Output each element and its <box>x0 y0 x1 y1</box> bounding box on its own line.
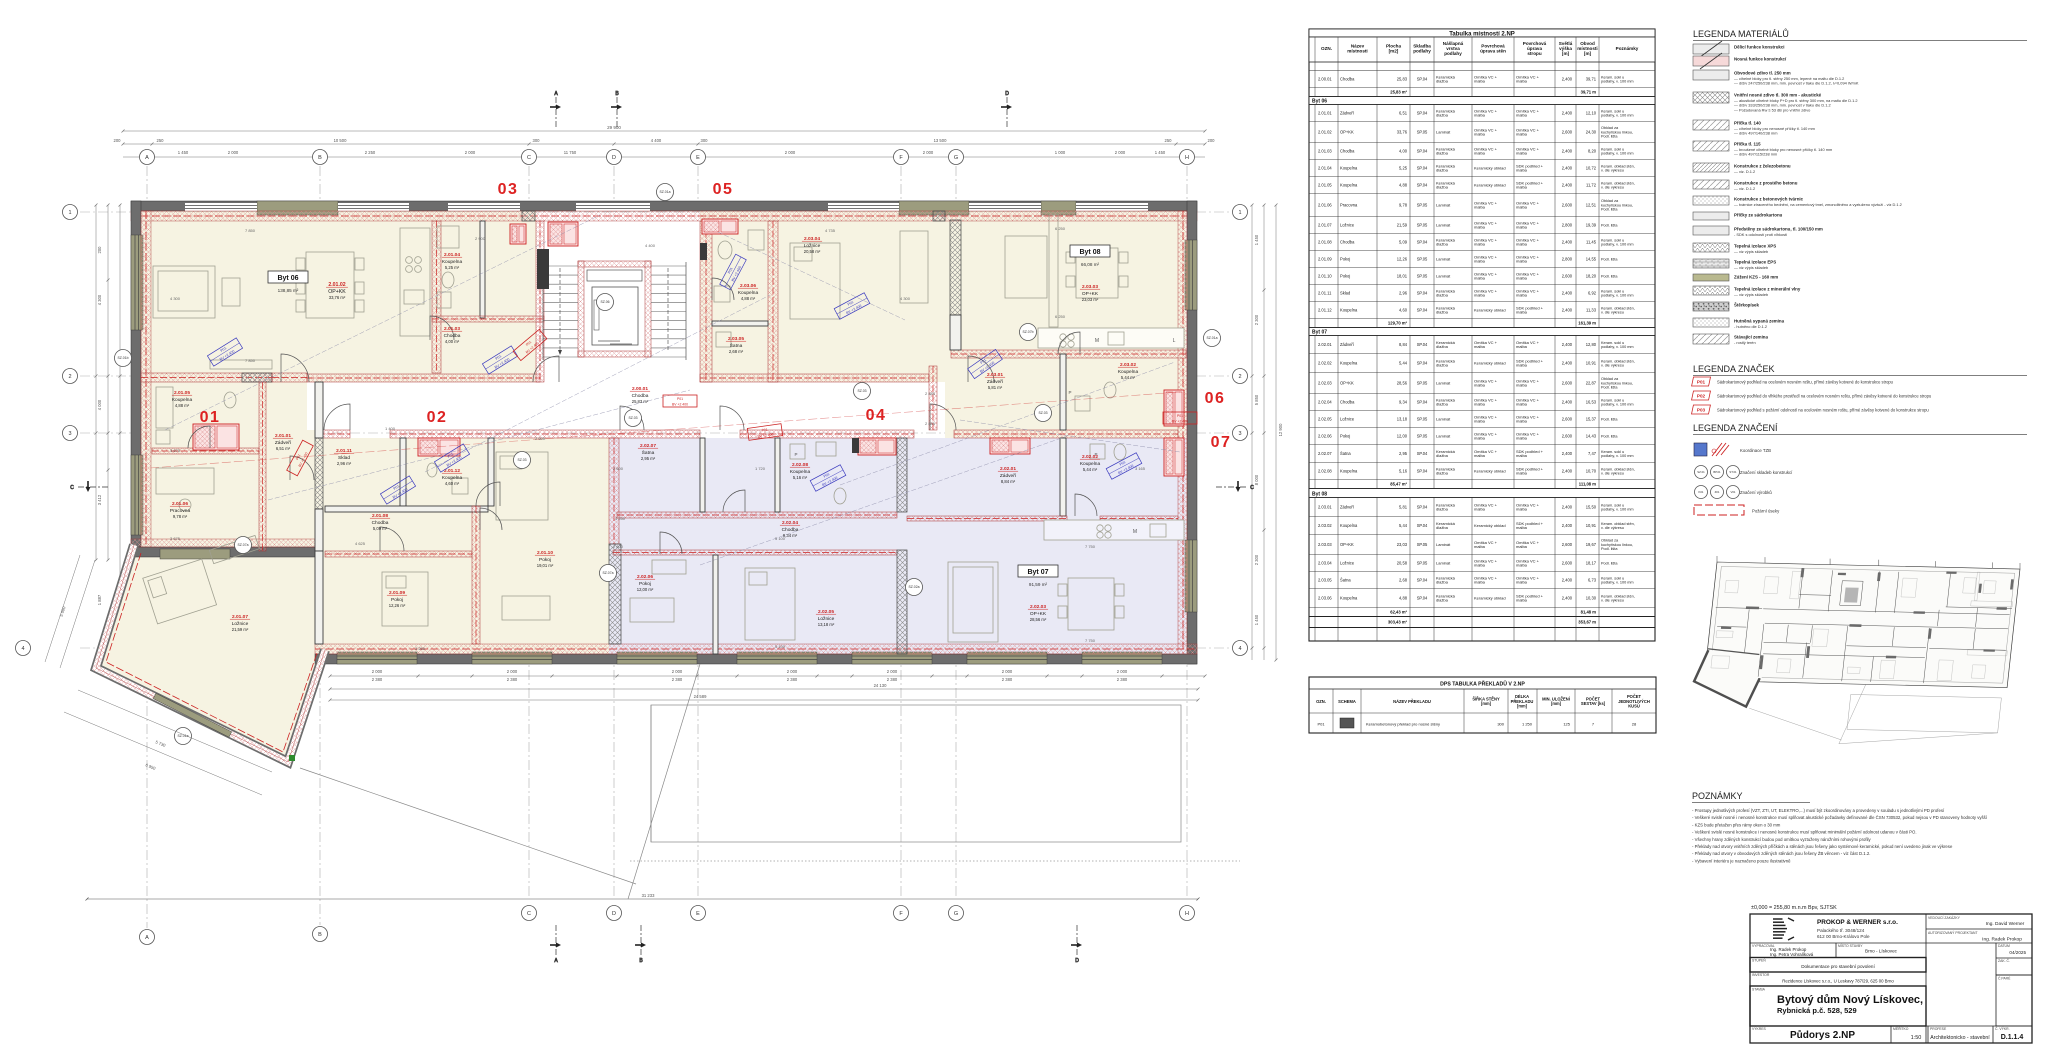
svg-text:2,400: 2,400 <box>1562 110 1573 115</box>
svg-text:Koupelna: Koupelna <box>1340 468 1358 473</box>
svg-text:303,43 m²: 303,43 m² <box>1388 620 1408 625</box>
svg-text:Keramický obklad: Keramický obklad <box>1474 360 1506 365</box>
svg-text:malba: malba <box>1516 363 1528 368</box>
svg-text:8 000: 8 000 <box>1254 474 1259 485</box>
svg-text:Laminát: Laminát <box>1436 542 1451 547</box>
svg-text:2,400: 2,400 <box>1562 239 1573 244</box>
svg-text:Keramobetonový překlad pro nos: Keramobetonový překlad pro nosné stěny <box>1366 722 1440 727</box>
svg-text:2 380: 2 380 <box>787 677 798 682</box>
svg-text:malba: malba <box>1516 293 1528 298</box>
svg-text:malba: malba <box>1516 225 1528 230</box>
svg-text:SP.04: SP.04 <box>1417 148 1428 153</box>
svg-text:malba: malba <box>1516 419 1528 424</box>
svg-text:malba: malba <box>1474 544 1486 549</box>
svg-text:5,16 m²: 5,16 m² <box>793 475 808 480</box>
svg-text:14,55: 14,55 <box>1586 256 1597 261</box>
svg-text:Ložnice: Ložnice <box>1340 222 1355 227</box>
svg-text:13 500: 13 500 <box>934 138 947 143</box>
svg-text:20,58: 20,58 <box>1397 560 1408 565</box>
svg-text:malba: malba <box>1474 225 1486 230</box>
svg-text:STAVBA: STAVBA <box>1752 988 1766 992</box>
svg-text:Příčky ze sádrokartonu: Příčky ze sádrokartonu <box>1734 213 1783 218</box>
svg-text:2,95 m²: 2,95 m² <box>641 456 656 461</box>
svg-text:9,78: 9,78 <box>1399 202 1408 207</box>
svg-text:Vnitřní nosné zdivo tl. 300 mm: Vnitřní nosné zdivo tl. 300 mm - akustic… <box>1734 93 1822 98</box>
svg-text:12,51: 12,51 <box>1586 202 1597 207</box>
svg-text:Podl. lišta: Podl. lišta <box>1601 208 1618 212</box>
svg-text:SZ.07a: SZ.07a <box>238 543 249 547</box>
svg-text:podlahy: podlahy <box>1413 49 1431 54</box>
svg-text:Zádveří: Zádveří <box>1340 342 1355 347</box>
svg-text:15,50: 15,50 <box>1586 504 1597 509</box>
svg-text:KUSŮ: KUSŮ <box>1628 703 1640 708</box>
svg-text:2.01.09: 2.01.09 <box>1318 256 1332 261</box>
svg-text:VÝKRES: VÝKRES <box>1752 1027 1766 1031</box>
svg-text:12,00 m²: 12,00 m² <box>637 587 654 592</box>
svg-text:Keramický obklad: Keramický obklad <box>1474 182 1506 187</box>
svg-text:podlahy, v. 100 mm: podlahy, v. 100 mm <box>1601 403 1634 407</box>
svg-text:- Všechny hrany zděných konstr: - Všechny hrany zděných konstrukcí budou… <box>1692 837 1871 842</box>
svg-text:LEGENDA ZNAČENÍ: LEGENDA ZNAČENÍ <box>1693 423 1778 433</box>
svg-text:Tabulka místností 2.NP: Tabulka místností 2.NP <box>1449 32 1515 38</box>
svg-text:7,47: 7,47 <box>1588 451 1597 456</box>
svg-text:C: C <box>70 485 74 491</box>
svg-text:8,84: 8,84 <box>1399 342 1408 347</box>
svg-text:3 675: 3 675 <box>170 448 181 453</box>
svg-text:P01: P01 <box>1697 380 1706 385</box>
svg-text:podlahy, v. 100 mm: podlahy, v. 100 mm <box>1601 80 1634 84</box>
svg-text:2.01.06: 2.01.06 <box>1318 202 1332 207</box>
svg-text:2.01.08: 2.01.08 <box>1318 239 1332 244</box>
svg-text:Ložnice: Ložnice <box>1340 560 1355 565</box>
svg-text:Koordinace TZB: Koordinace TZB <box>1740 448 1771 453</box>
svg-text:2.02.03: 2.02.03 <box>1318 380 1332 385</box>
svg-text:Laminát: Laminát <box>1436 273 1451 278</box>
svg-text:SP.04: SP.04 <box>1417 239 1428 244</box>
svg-text:Keramický obklad: Keramický obklad <box>1474 523 1506 528</box>
svg-text:2.01.11: 2.01.11 <box>1318 290 1332 295</box>
svg-text:dlažba: dlažba <box>1436 363 1449 368</box>
svg-text:2 000: 2 000 <box>887 669 898 674</box>
svg-text:Předstěny ze sádrokartonu, tl.: Předstěny ze sádrokartonu, tl. 100/150 m… <box>1734 227 1823 232</box>
svg-text:7 850: 7 850 <box>245 358 256 363</box>
svg-text:02: 02 <box>427 409 448 426</box>
svg-text:111,08 m: 111,08 m <box>1579 482 1597 487</box>
svg-text:- Prostupy jednotlivých profes: - Prostupy jednotlivých profesí (VZT, ZT… <box>1692 808 1945 813</box>
svg-text:200: 200 <box>1208 138 1216 143</box>
svg-text:39,71: 39,71 <box>1586 76 1597 81</box>
svg-text:malba: malba <box>1516 544 1528 549</box>
svg-text:v. dle výkresu: v. dle výkresu <box>1601 186 1624 190</box>
svg-text:Poznámky: Poznámky <box>1616 46 1639 51</box>
svg-text:5,16: 5,16 <box>1399 468 1408 473</box>
svg-text:2: 2 <box>68 374 71 380</box>
svg-text:SZ.03: SZ.03 <box>628 416 637 420</box>
svg-text:P: P <box>794 452 797 457</box>
svg-text:[m]: [m] <box>1562 51 1570 56</box>
svg-text:C: C <box>527 911 531 917</box>
svg-text:5,44: 5,44 <box>1399 360 1408 365</box>
svg-text:2 900: 2 900 <box>475 236 486 241</box>
svg-text:12,26 m²: 12,26 m² <box>389 603 406 608</box>
svg-text:Laminát: Laminát <box>1436 129 1451 134</box>
svg-text:2,600: 2,600 <box>1562 202 1573 207</box>
svg-text:SP.04: SP.04 <box>1417 76 1428 81</box>
svg-text:13,18: 13,18 <box>1397 416 1408 421</box>
svg-text:7 750: 7 750 <box>1085 544 1096 549</box>
svg-text:2,96 m²: 2,96 m² <box>337 461 352 466</box>
svg-text:2,400: 2,400 <box>1562 468 1573 473</box>
svg-text:2 380: 2 380 <box>1002 677 1013 682</box>
svg-text:2 380: 2 380 <box>372 677 383 682</box>
svg-text:P01: P01 <box>677 397 683 401</box>
svg-text:6 250: 6 250 <box>1055 314 1066 319</box>
svg-text:malba: malba <box>1474 293 1486 298</box>
svg-text:SP.04: SP.04 <box>1417 468 1428 473</box>
svg-text:podlahy: podlahy <box>1444 51 1462 56</box>
svg-text:malba: malba <box>1474 132 1486 137</box>
svg-text:Šatna: Šatna <box>642 449 655 456</box>
svg-text:2,400: 2,400 <box>1562 182 1573 187</box>
svg-text:SP.04: SP.04 <box>1417 451 1428 456</box>
svg-text:C: C <box>527 155 531 161</box>
svg-text:6,51: 6,51 <box>1399 110 1408 115</box>
svg-text:11 750: 11 750 <box>564 150 577 155</box>
svg-text:5,44 m²: 5,44 m² <box>1083 467 1098 472</box>
svg-text:malba: malba <box>1474 242 1486 247</box>
svg-text:1 400: 1 400 <box>385 426 396 431</box>
svg-text:malba: malba <box>1516 259 1528 264</box>
svg-text:Koupelna: Koupelna <box>1340 307 1358 312</box>
svg-text:2 300: 2 300 <box>1254 314 1259 325</box>
svg-text:v. dle výkresu: v. dle výkresu <box>1601 311 1624 315</box>
svg-text:Laminát: Laminát <box>1436 560 1451 565</box>
svg-text:podlahy, v. 100 mm: podlahy, v. 100 mm <box>1601 345 1634 349</box>
svg-text:malba: malba <box>1474 344 1486 349</box>
svg-text:Stávající zemina: Stávající zemina <box>1734 335 1768 340</box>
svg-text:- rostlý terén: - rostlý terén <box>1734 340 1756 345</box>
svg-text:5 100: 5 100 <box>775 536 786 541</box>
svg-text:2,400: 2,400 <box>1562 399 1573 404</box>
svg-text:G: G <box>954 155 958 161</box>
svg-text:4,00: 4,00 <box>1399 148 1408 153</box>
svg-text:10,70: 10,70 <box>1586 468 1597 473</box>
svg-text:250: 250 <box>1165 138 1173 143</box>
svg-text:PROFESE: PROFESE <box>1930 1027 1947 1031</box>
svg-text:— d/š/v 497/140/238 mm: — d/š/v 497/140/238 mm <box>1734 131 1777 136</box>
svg-text:V01: V01 <box>1731 490 1736 494</box>
svg-text:5,09: 5,09 <box>1399 239 1408 244</box>
svg-text:6 250: 6 250 <box>1055 226 1066 231</box>
svg-text:4,88: 4,88 <box>1399 595 1408 600</box>
svg-text:dlažba: dlažba <box>1436 293 1449 298</box>
svg-text:Chodba: Chodba <box>1340 76 1355 81</box>
svg-text:Bytový dům Nový Lískovec,: Bytový dům Nový Lískovec, <box>1777 994 1923 1006</box>
svg-text:4 625: 4 625 <box>355 541 366 546</box>
svg-text:Byt 07: Byt 07 <box>1027 569 1048 576</box>
svg-text:SP.05: SP.05 <box>1417 416 1428 421</box>
svg-text:SP.05: SP.05 <box>1417 222 1428 227</box>
svg-text:6,51 m²: 6,51 m² <box>276 446 291 451</box>
svg-text:L: L <box>1173 338 1176 344</box>
svg-text:2 885: 2 885 <box>925 391 936 396</box>
svg-text:DPS TABULKA PŘEKLADŮ V 2.NP: DPS TABULKA PŘEKLADŮ V 2.NP <box>1440 680 1525 688</box>
svg-text:malba: malba <box>1516 598 1528 603</box>
svg-text:2.02.04: 2.02.04 <box>1318 399 1332 404</box>
svg-text:2,600: 2,600 <box>1562 433 1573 438</box>
svg-text:Koupelna: Koupelna <box>1340 523 1358 528</box>
svg-text:- hutněno dle D.1.2: - hutněno dle D.1.2 <box>1734 324 1767 329</box>
svg-text:10,91: 10,91 <box>1586 360 1597 365</box>
svg-text:NÁZEV PŘEKLADU: NÁZEV PŘEKLADU <box>1393 699 1431 704</box>
svg-text:612 00 Brno-Královo Pole: 612 00 Brno-Královo Pole <box>1817 934 1870 939</box>
svg-text:19,39: 19,39 <box>1586 222 1597 227</box>
svg-text:2.03.01: 2.03.01 <box>1318 504 1332 509</box>
svg-text:2 000: 2 000 <box>923 150 934 155</box>
svg-text:2,400: 2,400 <box>1562 595 1573 600</box>
svg-text:2.01.04: 2.01.04 <box>1318 165 1332 170</box>
svg-text:D: D <box>1005 91 1009 97</box>
svg-text:Dělicí funkce konstrukci: Dělicí funkce konstrukci <box>1734 45 1785 50</box>
svg-text:10 500: 10 500 <box>334 138 347 143</box>
svg-text:Obvodové zdivo tl. 250 mm: Obvodové zdivo tl. 250 mm <box>1734 71 1791 76</box>
svg-text:SP.05: SP.05 <box>1417 129 1428 134</box>
svg-text:2.03.06: 2.03.06 <box>1318 595 1332 600</box>
svg-text:Sádrokartonový podhled s požár: Sádrokartonový podhled s požární odolnos… <box>1717 408 1929 413</box>
svg-text:Šatna: Šatna <box>1340 451 1351 456</box>
svg-text:Tepelná izolace z minerální vl: Tepelná izolace z minerální vlny <box>1734 287 1801 292</box>
svg-text:DATUM: DATUM <box>1998 944 2010 948</box>
svg-text:2,400: 2,400 <box>1562 504 1573 509</box>
svg-text:1: 1 <box>1238 210 1241 216</box>
svg-text:AUTORIZOVANÝ PROJEKTANT: AUTORIZOVANÝ PROJEKTANT <box>1928 931 1978 935</box>
svg-text:SZ.01a: SZ.01a <box>660 190 671 194</box>
svg-text:4,88 m²: 4,88 m² <box>741 296 756 301</box>
svg-text:03: 03 <box>498 181 519 198</box>
svg-text:[m]: [m] <box>1584 51 1592 56</box>
svg-text:Požární úseky: Požární úseky <box>1752 509 1780 514</box>
svg-text:VEDOUCÍ ZAKÁZKY: VEDOUCÍ ZAKÁZKY <box>1928 916 1961 920</box>
svg-text:— viz výpis skladeb: — viz výpis skladeb <box>1734 265 1768 270</box>
svg-text:2 600: 2 600 <box>613 466 624 471</box>
svg-text:300: 300 <box>1497 722 1504 727</box>
svg-text:Nosná funkce konstrukcí: Nosná funkce konstrukcí <box>1734 57 1787 62</box>
svg-text:H: H <box>1185 911 1189 917</box>
svg-text:malba: malba <box>1516 242 1528 247</box>
svg-text:1 000: 1 000 <box>1055 150 1066 155</box>
svg-text:2.00.01: 2.00.01 <box>1318 76 1332 81</box>
svg-text:6,73: 6,73 <box>1588 577 1597 582</box>
svg-text:66,08 m²: 66,08 m² <box>1081 262 1100 267</box>
svg-text:4 300: 4 300 <box>900 296 911 301</box>
svg-text:2 000: 2 000 <box>1115 150 1126 155</box>
svg-text:2 600: 2 600 <box>613 544 624 549</box>
svg-text:9,34 m²: 9,34 m² <box>783 533 798 538</box>
svg-text:Hutněná sypaná zemina: Hutněná sypaná zemina <box>1734 319 1785 324</box>
svg-text:[mm]: [mm] <box>1551 701 1562 706</box>
svg-text:11,45: 11,45 <box>1586 239 1597 244</box>
svg-text:2,400: 2,400 <box>1562 577 1573 582</box>
svg-text:4 735: 4 735 <box>825 228 836 233</box>
svg-text:2.02.01: 2.02.01 <box>1318 342 1332 347</box>
svg-text:Sádrokartonový podhled na ocel: Sádrokartonový podhled na ocelovém nosné… <box>1717 380 1893 385</box>
svg-text:— d/š/v 247/250/238 mm, min. p: — d/š/v 247/250/238 mm, min. pevnost v t… <box>1734 81 1859 86</box>
svg-text:dlažba: dlažba <box>1436 242 1449 247</box>
svg-text:19,67: 19,67 <box>1586 542 1597 547</box>
svg-text:Pokoj: Pokoj <box>1340 273 1350 278</box>
svg-text:E: E <box>696 155 700 161</box>
svg-text:Koupelna: Koupelna <box>1340 595 1358 600</box>
svg-text:2 000: 2 000 <box>785 150 796 155</box>
svg-text:04: 04 <box>866 407 887 424</box>
svg-text:Keramický obklad: Keramický obklad <box>1474 595 1506 600</box>
svg-text:Pokoj: Pokoj <box>1340 433 1350 438</box>
svg-text:malba: malba <box>1474 580 1486 585</box>
svg-text:P01: P01 <box>761 428 768 433</box>
svg-text:2,400: 2,400 <box>1562 307 1573 312</box>
svg-text:INVESTOR: INVESTOR <box>1752 973 1770 977</box>
svg-text:Ing. Radek Prokop: Ing. Radek Prokop <box>1982 937 2022 943</box>
svg-text:místnosti: místnosti <box>1347 49 1367 54</box>
svg-text:C: C <box>1250 485 1254 491</box>
svg-text:Ing. Petra Vohralíková: Ing. Petra Vohralíková <box>1770 952 1814 957</box>
svg-text:malba: malba <box>1516 310 1528 315</box>
svg-text:- Vybavení interiéru je naznač: - Vybavení interiéru je naznačeno pouze … <box>1692 858 1791 863</box>
svg-text:2,400: 2,400 <box>1562 76 1573 81</box>
svg-text:28,56 m²: 28,56 m² <box>1030 617 1047 622</box>
svg-text:malba: malba <box>1516 276 1528 281</box>
svg-text:2 000: 2 000 <box>372 669 383 674</box>
svg-text:— viz výpis skladeb: — viz výpis skladeb <box>1734 249 1768 254</box>
svg-text:— viz výpis skladeb: — viz výpis skladeb <box>1734 292 1768 297</box>
svg-text:Konstrukce z prostého betonu: Konstrukce z prostého betonu <box>1734 181 1798 186</box>
svg-text:28: 28 <box>1632 722 1637 727</box>
svg-text:4,60 m²: 4,60 m² <box>445 481 460 486</box>
svg-text:1 450: 1 450 <box>1254 614 1259 625</box>
svg-text:5,25: 5,25 <box>1399 165 1408 170</box>
svg-text:5,81 m²: 5,81 m² <box>988 385 1003 390</box>
svg-text:20,58 m²: 20,58 m² <box>804 249 821 254</box>
svg-text:SP.05: SP.05 <box>1417 560 1428 565</box>
svg-text:dlažba: dlažba <box>1436 402 1449 407</box>
svg-text:malba: malba <box>1516 205 1528 210</box>
svg-text:2,95: 2,95 <box>1399 451 1408 456</box>
svg-text:malba: malba <box>1474 151 1486 156</box>
svg-text:B: B <box>318 932 322 938</box>
svg-text:4,88 m²: 4,88 m² <box>175 403 190 408</box>
svg-text:malba: malba <box>1474 113 1486 118</box>
svg-text:4 400: 4 400 <box>645 243 656 248</box>
svg-text:2.02.07: 2.02.07 <box>1318 451 1332 456</box>
svg-text:POZNÁMKY: POZNÁMKY <box>1692 791 1743 801</box>
svg-text:4: 4 <box>21 646 24 652</box>
svg-text:Chodba: Chodba <box>1340 399 1355 404</box>
svg-text:D: D <box>612 911 616 917</box>
svg-text:05: 05 <box>713 181 734 198</box>
svg-text:2 600: 2 600 <box>535 436 546 441</box>
svg-text:dlažba: dlažba <box>1436 79 1449 84</box>
svg-text:29 900: 29 900 <box>607 125 621 130</box>
svg-text:podlahy, v. 100 mm: podlahy, v. 100 mm <box>1601 508 1634 512</box>
svg-text:SP.05: SP.05 <box>1417 256 1428 261</box>
svg-text:K01: K01 <box>1699 490 1704 494</box>
svg-text:SESTAV [ks]: SESTAV [ks] <box>1581 701 1606 706</box>
svg-text:19,01 m²: 19,01 m² <box>537 563 554 568</box>
svg-text:podlahy, v. 100 mm: podlahy, v. 100 mm <box>1601 243 1634 247</box>
svg-text:PROKOP & WERNER s.r.o.: PROKOP & WERNER s.r.o. <box>1817 919 1898 926</box>
svg-text:Laminát: Laminát <box>1436 222 1451 227</box>
svg-text:malba: malba <box>1516 79 1528 84</box>
svg-text:Podl. lišta: Podl. lišta <box>1601 434 1618 438</box>
svg-text:2.01.07: 2.01.07 <box>1318 222 1332 227</box>
svg-text:2,400: 2,400 <box>1562 165 1573 170</box>
svg-text:2.03.05: 2.03.05 <box>1318 577 1332 582</box>
svg-text:SZ.06: SZ.06 <box>600 300 609 304</box>
svg-text:5,44 m²: 5,44 m² <box>1121 375 1136 380</box>
svg-text:SZ.07b: SZ.07b <box>1023 330 1034 334</box>
svg-text:7 850: 7 850 <box>245 228 256 233</box>
svg-text:2,400: 2,400 <box>1562 148 1573 153</box>
svg-text:2 300: 2 300 <box>1254 554 1259 565</box>
svg-text:SCHEMA: SCHEMA <box>1338 699 1356 704</box>
svg-text:Konstrukce z železobetonu: Konstrukce z železobetonu <box>1734 164 1791 169</box>
svg-text:dlažba: dlažba <box>1436 151 1449 156</box>
svg-text:7 750: 7 750 <box>1085 638 1096 643</box>
svg-text:200: 200 <box>114 138 122 143</box>
svg-text:1 720: 1 720 <box>755 466 766 471</box>
svg-text:2,600: 2,600 <box>1562 273 1573 278</box>
svg-text:2,96: 2,96 <box>1399 290 1408 295</box>
svg-text:podlahy, v. 100 mm: podlahy, v. 100 mm <box>1601 152 1634 156</box>
svg-text:22,87: 22,87 <box>1586 380 1597 385</box>
svg-text:malba: malba <box>1516 453 1528 458</box>
svg-text:SZ.03: SZ.03 <box>517 458 526 462</box>
svg-text:14,43: 14,43 <box>1586 433 1597 438</box>
svg-text:12,10: 12,10 <box>1586 110 1597 115</box>
svg-text:- Překlady nad otvory v obvodo: - Překlady nad otvory v obvodových zděný… <box>1692 851 1870 856</box>
svg-text:podlahy, v. 100 mm: podlahy, v. 100 mm <box>1601 294 1634 298</box>
svg-text:4 400: 4 400 <box>651 138 662 143</box>
svg-text:21,59: 21,59 <box>1397 222 1408 227</box>
svg-text:OP+KK: OP+KK <box>1340 129 1354 134</box>
svg-text:25,83 m²: 25,83 m² <box>632 399 649 404</box>
svg-text:1:50: 1:50 <box>1911 1035 1922 1041</box>
svg-text:10,72: 10,72 <box>1586 165 1597 170</box>
svg-text:ST.01: ST.01 <box>1729 470 1737 474</box>
svg-text:OZN.: OZN. <box>1321 46 1332 51</box>
svg-text:SZ.07a: SZ.07a <box>603 571 614 575</box>
svg-text:SP.04: SP.04 <box>1417 165 1428 170</box>
svg-text:malba: malba <box>1474 507 1486 512</box>
svg-text:2,400: 2,400 <box>1562 290 1573 295</box>
svg-text:SZ.03: SZ.03 <box>857 389 866 393</box>
svg-text:2.01.03: 2.01.03 <box>1318 148 1332 153</box>
svg-text:B: B <box>318 155 322 161</box>
svg-text:malba: malba <box>1474 276 1486 281</box>
svg-text:18,17: 18,17 <box>1586 560 1597 565</box>
svg-text:Značení skladeb konstrukcí: Značení skladeb konstrukcí <box>1740 470 1793 475</box>
svg-text:dlažba: dlažba <box>1436 507 1449 512</box>
svg-text:2,800: 2,800 <box>1562 222 1573 227</box>
svg-text:300: 300 <box>701 138 709 143</box>
svg-text:SP.05: SP.05 <box>1417 202 1428 207</box>
svg-text:Pracovna: Pracovna <box>1340 202 1358 207</box>
svg-text:24 589: 24 589 <box>694 694 707 699</box>
svg-text:stropu: stropu <box>1527 51 1541 56</box>
svg-text:18,01: 18,01 <box>1397 273 1408 278</box>
svg-text:Byt 08: Byt 08 <box>1312 491 1327 497</box>
svg-text:malba: malba <box>1474 436 1486 441</box>
